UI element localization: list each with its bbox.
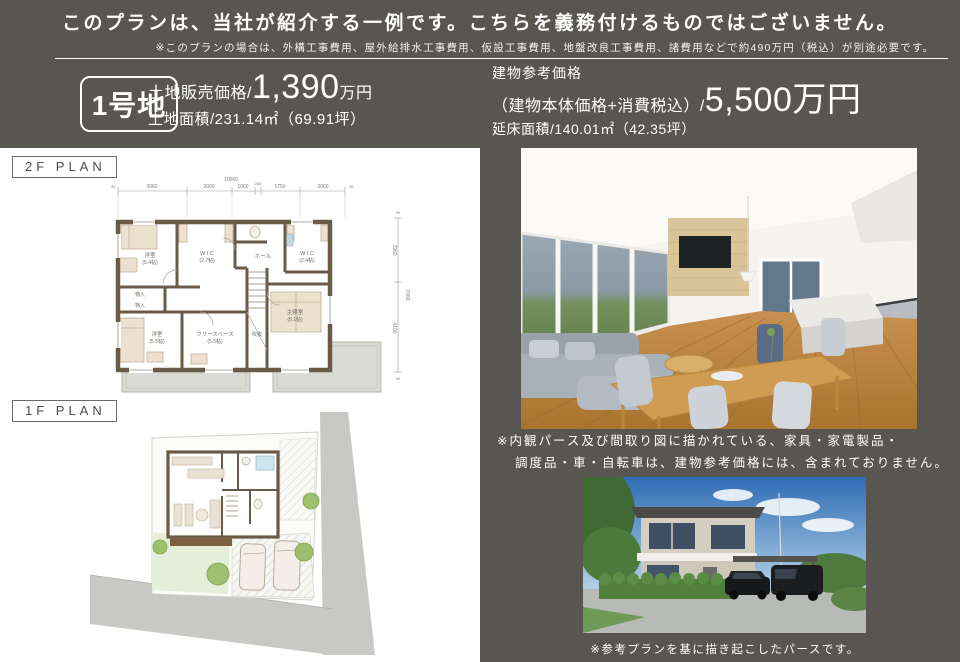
interior-render-drawing: [521, 148, 917, 429]
svg-text:物入: 物入: [135, 291, 145, 298]
label-2f-plan: 2F PLAN: [12, 156, 117, 178]
cost-note: ※このプランの場合は、外構工事費用、屋外給排水工事費用、仮設工事費用、地盤改良工…: [0, 40, 960, 55]
svg-text:主寝室: 主寝室: [287, 308, 304, 316]
parking: [232, 533, 314, 598]
svg-text:3060: 3060: [146, 184, 157, 190]
dimension-right: [394, 218, 402, 372]
svg-text:30: 30: [111, 184, 116, 189]
interior-render: [521, 148, 917, 429]
building-floor-area: 延床面積/140.01㎡（42.35坪）: [492, 119, 861, 139]
dimension-top: [118, 187, 345, 218]
exterior-render: [583, 477, 866, 633]
toilet-2f: [250, 226, 260, 238]
svg-text:物入: 物入: [135, 302, 145, 309]
svg-text:2000: 2000: [203, 184, 214, 190]
svg-text:250: 250: [255, 181, 262, 186]
wood-deck: [170, 537, 232, 546]
svg-text:7060: 7060: [404, 289, 410, 300]
svg-text:2960: 2960: [391, 244, 397, 255]
svg-text:(2.4帖): (2.4帖): [299, 257, 315, 264]
house-1f: [168, 452, 278, 546]
svg-text:ホール: ホール: [255, 253, 272, 260]
floor-plan-1f: [90, 412, 390, 660]
washbasin: [286, 234, 293, 246]
building-price-title: 建物参考価格: [492, 63, 861, 83]
tv: [679, 236, 731, 268]
header-band: このプランは、当社が紹介する一例です。こちらを義務付けるものではございません。 …: [0, 0, 960, 148]
svg-text:30: 30: [349, 184, 354, 189]
svg-text:W I C: W I C: [300, 251, 314, 257]
building-price-block: 建物参考価格 （建物本体価格+消費税込）/5,500万円 延床面積/140.01…: [492, 63, 861, 139]
floor-plan-2f: 10060 30 3060 2000 1000 250 1750 2000 30…: [105, 172, 465, 400]
real-estate-plan-sheet: このプランは、当社が紹介する一例です。こちらを義務付けるものではございません。 …: [0, 0, 960, 662]
floor-plan-1f-drawing: [90, 412, 390, 660]
disclaimer-title: このプランは、当社が紹介する一例です。こちらを義務付けるものではございません。: [0, 8, 960, 35]
interior-caption-line1: ※内観パース及び間取り図に描かれている、家具・家電製品・: [497, 431, 952, 453]
svg-text:フリースペース: フリースペース: [196, 331, 234, 338]
svg-text:30: 30: [396, 376, 401, 381]
svg-text:(5.5帖): (5.5帖): [207, 338, 223, 345]
svg-text:10060: 10060: [224, 177, 238, 183]
svg-text:洋室: 洋室: [151, 330, 163, 338]
interior-caption: ※内観パース及び間取り図に描かれている、家具・家電製品・ 調度品・車・自転車は、…: [497, 431, 952, 475]
interior-caption-line2: 調度品・車・自転車は、建物参考価格には、含まれておりません。: [497, 453, 952, 475]
tv-wall: [668, 218, 749, 296]
svg-text:(5.4帖): (5.4帖): [142, 259, 158, 266]
svg-text:4100: 4100: [391, 322, 397, 333]
svg-text:洋室: 洋室: [144, 251, 156, 259]
dimension-top-labels: 10060 30 3060 2000 1000 250 1750 2000 30: [111, 177, 354, 190]
dimension-right-labels: 2960 4100 7060 30 30: [391, 210, 410, 381]
exterior-caption: ※参考プランを基に描き起こしたパースです。: [565, 641, 885, 657]
land-price-value: 1,390: [252, 70, 340, 104]
svg-text:(5.5帖): (5.5帖): [149, 338, 165, 345]
svg-text:30: 30: [396, 210, 401, 215]
exterior-render-drawing: [583, 477, 866, 633]
svg-text:1750: 1750: [274, 184, 285, 190]
land-price-block: 土地販売価格/1,390万円 土地面積/231.14㎡（69.91坪）: [148, 70, 373, 129]
floor-plan-2f-drawing: 10060 30 3060 2000 1000 250 1750 2000 30…: [105, 172, 465, 400]
svg-text:1000: 1000: [237, 184, 248, 190]
svg-text:(8.1帖): (8.1帖): [287, 316, 303, 323]
land-price-label: 土地販売価格/: [148, 79, 252, 103]
building-price-prefix: （建物本体価格+消費税込）/: [492, 92, 705, 116]
svg-text:W I C: W I C: [200, 251, 214, 257]
svg-text:(2.7帖): (2.7帖): [199, 257, 215, 264]
land-area: 土地面積/231.14㎡（69.91坪）: [148, 108, 373, 129]
carport-roof: [733, 556, 817, 562]
land-price-unit: 万円: [340, 79, 373, 103]
svg-text:吹抜: 吹抜: [252, 331, 262, 338]
header-divider: [55, 58, 948, 59]
building-price-value: 5,500万円: [705, 83, 862, 117]
svg-text:2000: 2000: [317, 184, 328, 190]
